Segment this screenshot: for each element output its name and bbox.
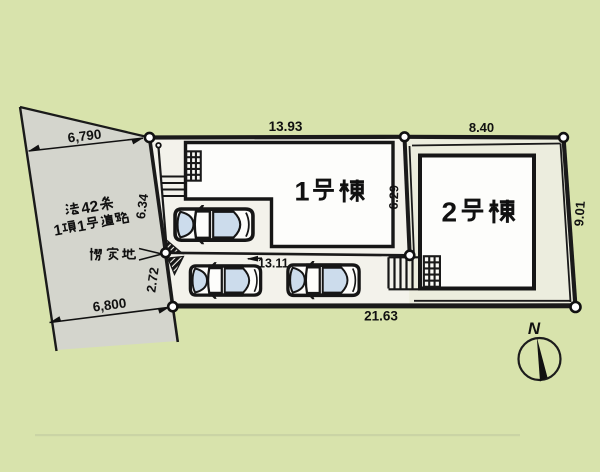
svg-text:N: N — [528, 319, 541, 338]
svg-text:8.40: 8.40 — [469, 120, 494, 135]
svg-text:6.29: 6.29 — [387, 185, 402, 210]
svg-text:9.01: 9.01 — [571, 201, 588, 227]
svg-text:42: 42 — [80, 198, 100, 218]
svg-text:21.63: 21.63 — [364, 309, 398, 324]
svg-text:1: 1 — [295, 177, 310, 207]
svg-text:2: 2 — [442, 197, 458, 228]
svg-text:13.93: 13.93 — [269, 119, 303, 134]
svg-text:13.11: 13.11 — [258, 257, 289, 271]
